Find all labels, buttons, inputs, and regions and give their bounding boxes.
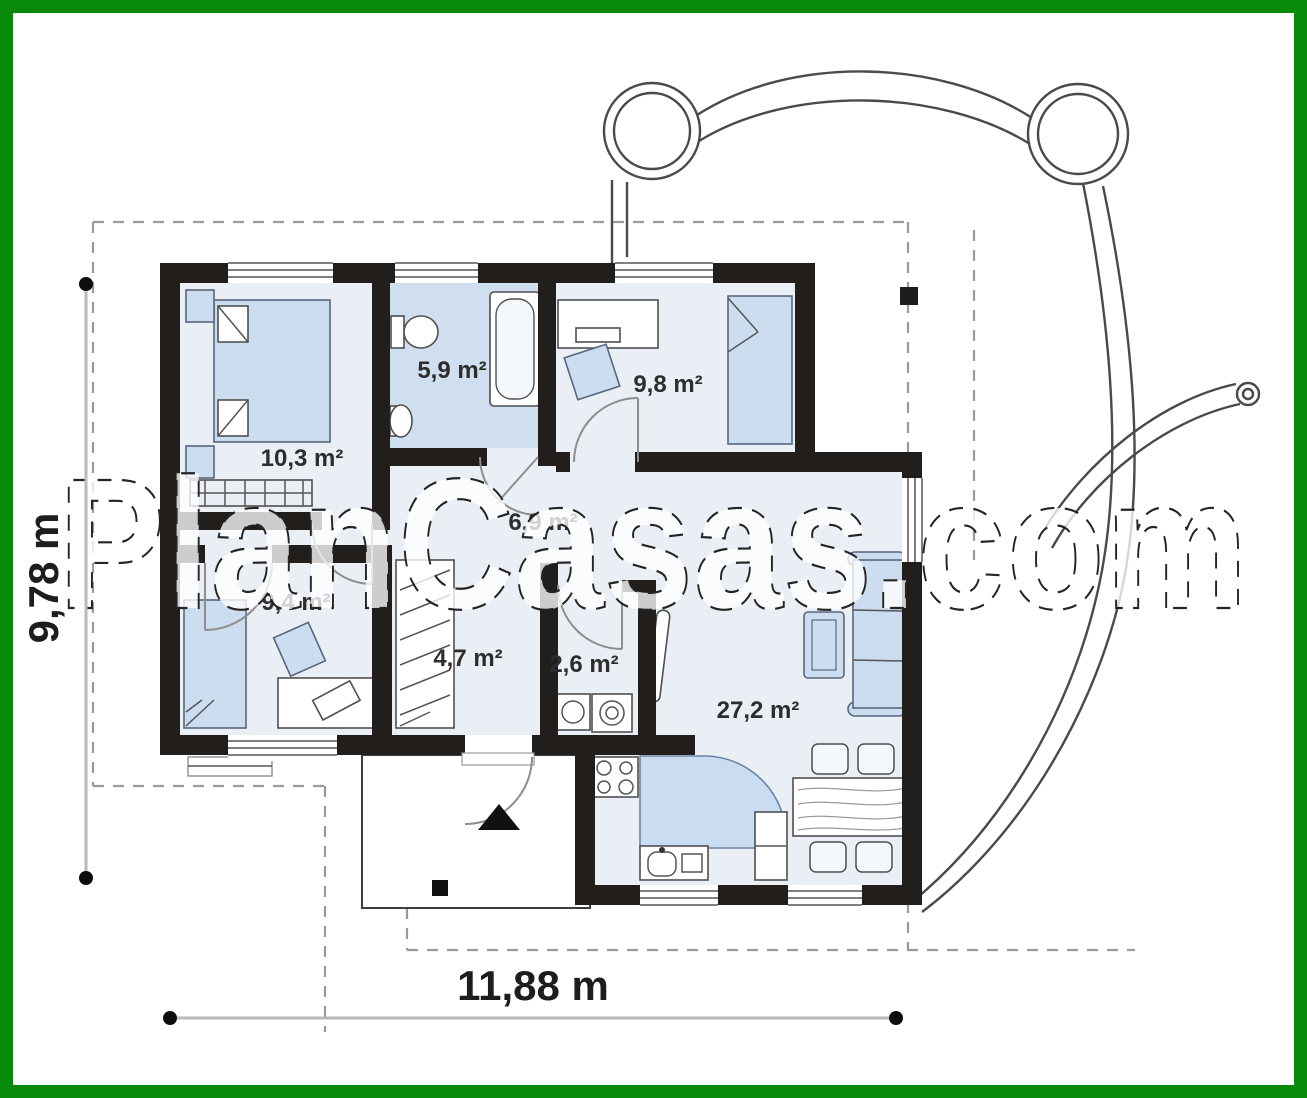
watermark-text: PlanCasas.com bbox=[58, 441, 1248, 648]
label-living-kitchen: 27,2 m² bbox=[717, 697, 800, 724]
chair bbox=[812, 744, 848, 774]
dim-label-width: 11,88 m bbox=[457, 962, 609, 1009]
path-arc-top-outer bbox=[697, 71, 1032, 118]
bed-single bbox=[728, 296, 792, 444]
label-corridor: 4,7 m² bbox=[433, 645, 502, 672]
porch-outline bbox=[362, 755, 590, 908]
tree-circle-left-inner bbox=[614, 93, 690, 169]
washing-machine bbox=[556, 694, 590, 730]
path-end-knob bbox=[1237, 383, 1259, 405]
window bbox=[228, 257, 333, 283]
path-arc-top-inner bbox=[699, 100, 1030, 144]
tree-circle-right-inner bbox=[1038, 94, 1118, 174]
porch-marker-square bbox=[432, 880, 448, 896]
window bbox=[640, 885, 718, 911]
toilet-tank bbox=[391, 316, 404, 348]
toilet-bowl bbox=[404, 316, 438, 348]
label-bathroom: 5,9 m² bbox=[417, 357, 486, 384]
sink-bowl bbox=[390, 405, 412, 437]
window bbox=[395, 257, 478, 283]
label-bedroom-2: 9,8 m² bbox=[633, 371, 702, 398]
dim-dot bbox=[889, 1011, 903, 1025]
entrance-threshold bbox=[462, 753, 534, 765]
dim-dot bbox=[79, 277, 93, 291]
faucet bbox=[659, 847, 665, 853]
tree-circle-right bbox=[1028, 84, 1128, 184]
label-wc-laundry: 2,6 m² bbox=[549, 651, 618, 678]
nightstand bbox=[186, 290, 214, 322]
sink-unit bbox=[640, 846, 708, 880]
sofa-cushion-line bbox=[853, 660, 905, 661]
dim-label-height: 9,78 m bbox=[20, 513, 67, 644]
desk-monitor bbox=[576, 328, 620, 342]
chair bbox=[858, 744, 894, 774]
window bbox=[788, 885, 862, 911]
dimension-horizontal: 11,88 m bbox=[163, 962, 903, 1025]
dryer bbox=[592, 694, 632, 732]
window bbox=[615, 257, 713, 283]
path-end-knob-inner bbox=[1243, 389, 1253, 399]
dining-table bbox=[793, 778, 911, 836]
wall-kitchen-top bbox=[595, 735, 695, 755]
chair bbox=[810, 842, 846, 872]
entrance-opening bbox=[465, 735, 532, 755]
dim-dot bbox=[163, 1011, 177, 1025]
wall-bath-bed2 bbox=[538, 283, 556, 466]
dim-dot bbox=[79, 871, 93, 885]
chair bbox=[856, 842, 892, 872]
plan-canvas: 10,3 m² 5,9 m² 9,8 m² 6,9 m² 9,4 m² 4,7 … bbox=[0, 0, 1307, 1098]
site-marker-square bbox=[900, 287, 918, 305]
floor-plan-svg: 10,3 m² 5,9 m² 9,8 m² 6,9 m² 9,4 m² 4,7 … bbox=[0, 0, 1307, 1098]
bathtub-inner bbox=[496, 299, 534, 399]
window bbox=[228, 735, 337, 761]
tree-circle-left bbox=[604, 83, 700, 179]
